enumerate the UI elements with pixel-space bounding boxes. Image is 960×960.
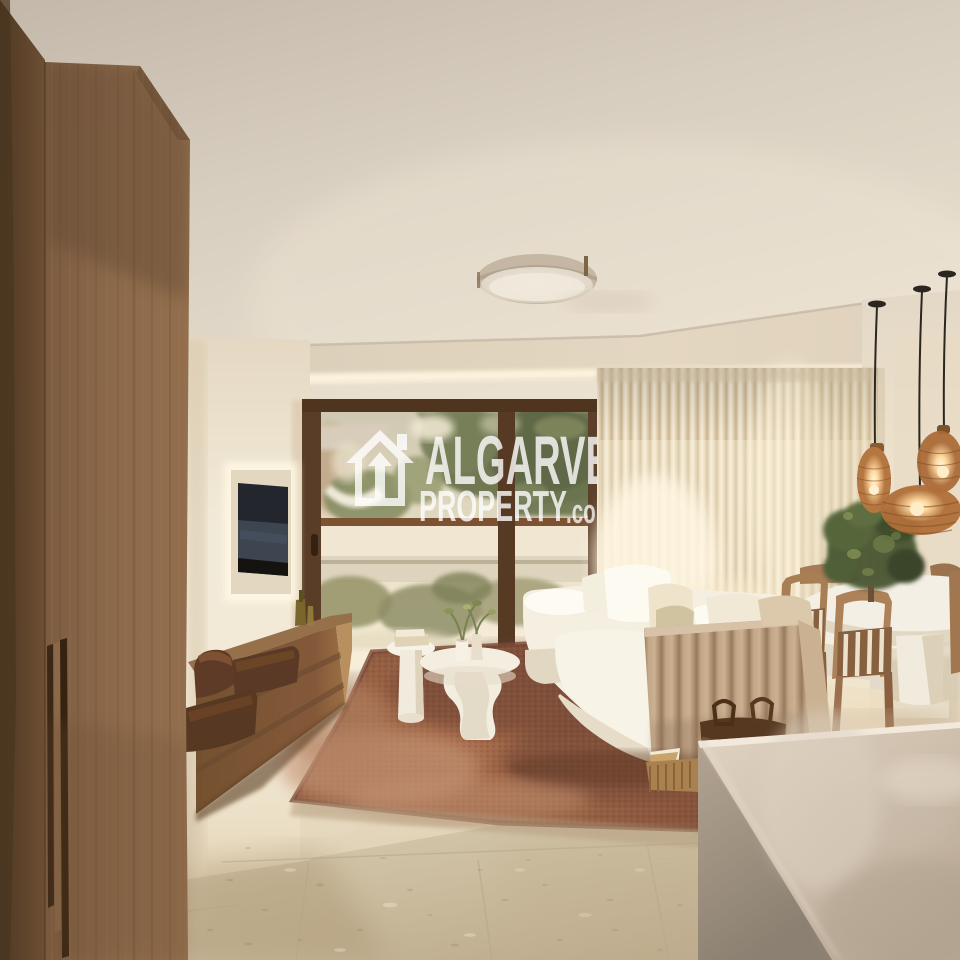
svg-text:PROPERTY: PROPERTY	[419, 482, 567, 531]
